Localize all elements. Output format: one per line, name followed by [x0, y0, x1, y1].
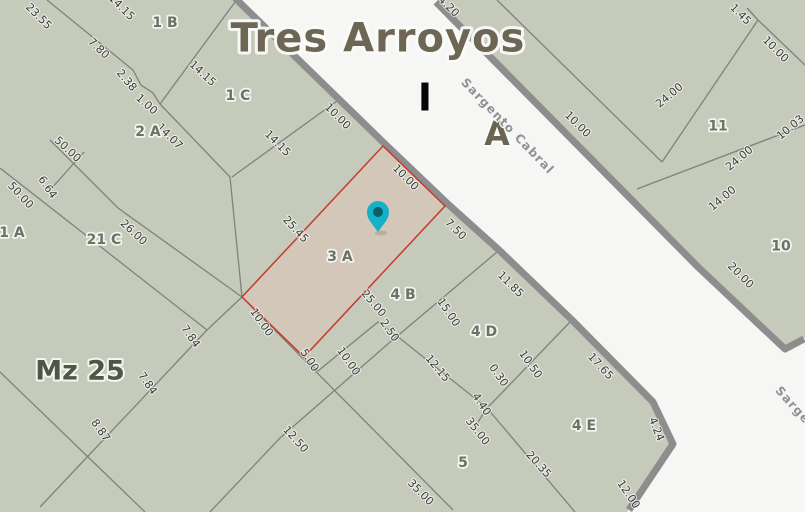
- block-letter-i: I: [418, 76, 432, 120]
- pin-shadow: [375, 231, 387, 236]
- parcel-label-2a: 2 A: [135, 124, 161, 140]
- parcel-label-11: 11: [708, 118, 727, 134]
- parcel-label-5: 5: [458, 455, 468, 471]
- map-canvas[interactable]: 23.557.802.381.0014.1514.1514.1514.0710.…: [0, 0, 805, 512]
- map-title: Tres Arroyos: [231, 15, 526, 61]
- parcel-label-3a: 3 A: [327, 249, 353, 265]
- parcel-label-21c: 21 C: [87, 232, 122, 248]
- cadastral-map-svg[interactable]: 23.557.802.381.0014.1514.1514.1514.0710.…: [0, 0, 805, 512]
- parcel-label-1b: 1 B: [152, 15, 177, 31]
- parcel-label-4e: 4 E: [572, 418, 596, 434]
- map-pin-hole: [373, 207, 383, 217]
- parcel-label-4d: 4 D: [471, 324, 497, 340]
- parcel-label-1a: 1 A: [0, 225, 25, 241]
- parcel-label-10: 10: [771, 238, 791, 254]
- parcel-label-4b: 4 B: [390, 287, 415, 303]
- manzana-label: Mz 25: [35, 356, 125, 387]
- parcel-label-1c: 1 C: [226, 88, 251, 104]
